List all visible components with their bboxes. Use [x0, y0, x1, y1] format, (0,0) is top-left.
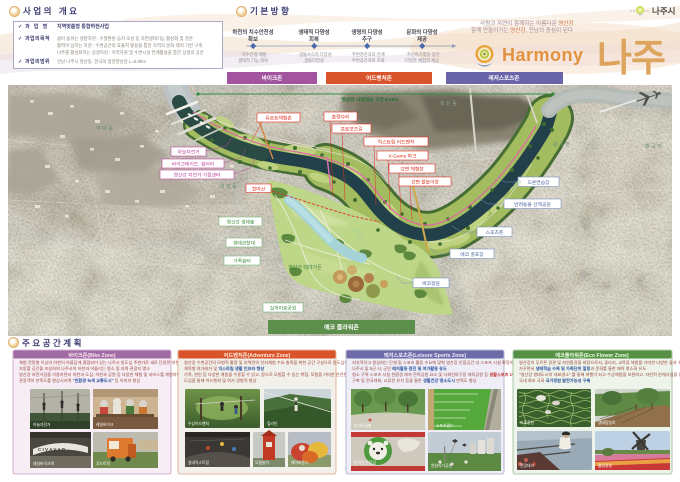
svg-text:· 주변공간과의 조화: · 주변공간과의 조화 — [349, 57, 384, 64]
svg-text:사업의 개요: 사업의 개요 — [23, 6, 79, 16]
svg-text:부덕동: 부덕동 — [96, 125, 114, 132]
svg-text:바이크레이드, 쉼터리: 바이크레이드, 쉼터리 — [172, 161, 214, 168]
svg-text:기본방향: 기본방향 — [250, 6, 291, 16]
svg-text:에코정원: 에코정원 — [422, 280, 440, 287]
svg-text:과 업 명: 과 업 명 — [25, 23, 49, 30]
svg-text:생태탐방로: 생태탐방로 — [598, 420, 616, 425]
svg-text:지역맞춤형 통합하천사업: 지역맞춤형 통합하천사업 — [57, 23, 109, 30]
svg-text:튤립정원: 튤립정원 — [598, 463, 612, 468]
svg-text:✓: ✓ — [18, 36, 22, 42]
svg-text:영산강 사업대상 구간 8.0km: 영산강 사업대상 구간 8.0km — [341, 96, 398, 103]
svg-text:레일바이크역: 레일바이크역 — [33, 461, 54, 466]
svg-text:피크닉공원: 피크닉공원 — [354, 423, 372, 428]
svg-text:칠마산: 칠마산 — [252, 185, 266, 192]
svg-text:문화의 다양성: 문화의 다양성 — [406, 28, 437, 36]
svg-text:에코플라워존(Eco Flower Zone): 에코플라워존(Eco Flower Zone) — [555, 351, 629, 359]
svg-text:유르트체험촌: 유르트체험촌 — [265, 115, 292, 122]
svg-text:지속적이고 왕성하는 단체 및 스포츠 활동 수요에 맞춰: 지속적이고 왕성하는 단체 및 스포츠 활동 수요에 맞춰 영산강 인접공간 내… — [352, 359, 518, 366]
svg-text:나주시: 나주시 — [652, 6, 675, 16]
svg-text:영산강 자전거 거점센터: 영산강 자전거 거점센터 — [174, 172, 221, 179]
svg-text:스포츠존: 스포츠존 — [486, 230, 504, 236]
svg-text:"영산강 생태도시의 대표명소" 를 통해 여행이 되고 수: "영산강 생태도시의 대표명소" 를 통해 여행이 되고 수상체험을 보완하고,… — [519, 371, 680, 378]
svg-text:확보: 확보 — [248, 35, 258, 43]
svg-text:✓: ✓ — [18, 59, 22, 65]
svg-text:모험놀이: 모험놀이 — [255, 460, 269, 465]
svg-text:푸드트럭: 푸드트럭 — [96, 461, 110, 466]
svg-text:어드벤처존(Adventure Zone): 어드벤처존(Adventure Zone) — [224, 351, 291, 359]
svg-text:스포츠필드: 스포츠필드 — [436, 423, 454, 428]
svg-text:반려견 운동장: 반려견 운동장 — [354, 460, 377, 465]
svg-text:나주시 및 5군 시, 군민 레저활동 증진 및 여가활동: 나주시 및 5군 시, 군민 레저활동 증진 및 여가활동 유도 — [352, 365, 447, 372]
svg-text:영산강 생태숲: 영산강 생태숲 — [227, 219, 255, 226]
svg-text:영산강 테마가든: 영산강 테마가든 — [288, 264, 322, 271]
svg-text:바이크존(Bike Zone): 바이크존(Bike Zone) — [68, 351, 116, 359]
svg-text:에코 골프장: 에코 골프장 — [460, 251, 484, 258]
svg-text:미로정원: 미로정원 — [520, 420, 534, 425]
svg-text:· 생물서식지 다양성: · 생물서식지 다양성 — [296, 51, 331, 58]
svg-text:나주를 활성화하는 상생하천 : 지역자원 및 수변시설 연: 나주를 활성화하는 상생하천 : 지역자원 및 수변시설 연계활용을 통한 상생… — [57, 49, 204, 56]
svg-text:회복: 회복 — [309, 35, 319, 43]
svg-text:영산강 수변공간의 모험적 활용 및 지역민의 인지체험 수: 영산강 수변공간의 모험적 활용 및 지역민의 인지체험 수요 충족을 위한 공… — [184, 359, 348, 366]
svg-text:영산강의 푸르른 경관 및 자연환경을 바탕으로서, 꽃다지: 영산강의 푸르른 경관 및 자연환경을 바탕으로서, 꽃다지, 교목류 체험을 … — [519, 359, 680, 366]
svg-text:연날리기공원: 연날리기공원 — [431, 463, 452, 468]
svg-text:조망할 공간을 조성하여 나주시의 하천과 어울리는 명소: 조망할 공간을 조성하여 나주시의 하천과 어울리는 명소 및 지역 관광지 명… — [19, 365, 150, 372]
svg-text:과업의목적: 과업의목적 — [25, 35, 50, 42]
svg-text:구축 및 전국대회, 교류전 유치 등을 통한 생활건강 명: 구축 및 전국대회, 교류전 유치 등을 통한 생활건강 명소도시 만족도 향상 — [352, 377, 477, 384]
svg-text:전망데크: 전망데크 — [520, 463, 534, 468]
svg-text:체험 전망형 이상의 하천이 아름답게 결합되어 있는 나주: 체험 전망형 이상의 하천이 아름답게 결합되어 있는 나주시 원도심 주변가로… — [19, 359, 196, 366]
svg-text:보산동: 보산동 — [440, 100, 458, 107]
svg-text:다양한 체험의 제공: 다양한 체험의 제공 — [405, 57, 439, 64]
svg-text:하천의 치수안전성: 하천의 치수안전성 — [232, 28, 273, 36]
svg-text:왕곡면: 왕곡면 — [553, 141, 571, 148]
svg-text:하늘자전거: 하늘자전거 — [177, 149, 199, 156]
svg-text:체육형 여가레저 및 익스트림 생활 인프라 향상: 체육형 여가레저 및 익스트림 생활 인프라 향상 — [184, 365, 264, 372]
svg-text:실개미로공원: 실개미로공원 — [270, 305, 296, 312]
svg-text:· 치수안정 제방: · 치수안정 제방 — [239, 51, 267, 58]
svg-text:과업의범위: 과업의범위 — [25, 58, 50, 65]
svg-text:레저스포츠존(Leisure Sports Zone): 레저스포츠존(Leisure Sports Zone) — [384, 351, 467, 359]
svg-text:국내 최초 국화 국가정원 발전가능성 구축: 국내 최초 국화 국가정원 발전가능성 구축 — [519, 377, 590, 384]
svg-text:반려동물 산책공원: 반려동물 산책공원 — [514, 201, 551, 208]
svg-text:생명의 다양성: 생명의 다양성 — [351, 28, 382, 36]
svg-text:실내익스트림: 실내익스트림 — [188, 460, 209, 465]
svg-text:가족, 연인 등 다양한 계층을 수용할 수 있고, 몸으로: 가족, 연인 등 다양한 계층을 수용할 수 있고, 몸으로 모험할 수 있는 … — [184, 371, 348, 378]
svg-text:바이크존: 바이크존 — [262, 74, 283, 82]
svg-text:강변 체험장: 강변 체험장 — [400, 166, 424, 173]
svg-text:함께 만들어가는 영산강, 전남의 중심이 된다: 함께 만들어가는 영산강, 전남의 중심이 된다 — [471, 26, 573, 34]
svg-text:생태관찰대: 생태관찰대 — [233, 240, 255, 247]
svg-text:수상어드벤처: 수상어드벤처 — [188, 421, 209, 426]
svg-text:레저스포츠존: 레저스포츠존 — [489, 74, 520, 82]
svg-text:생태적 다양성: 생태적 다양성 — [298, 28, 329, 36]
svg-text:✓: ✓ — [18, 24, 22, 30]
svg-text:청소 구역 스포츠 시설 친환경 레저 전략공원 요소 및: 청소 구역 스포츠 시설 친환경 레저 전략공원 요소 및 사회인야구장 체육공… — [352, 371, 520, 378]
svg-text:황곡리: 황곡리 — [645, 143, 663, 150]
svg-text:이창동: 이창동 — [220, 183, 238, 190]
svg-text:가꾸면서 생태학습 수목 및 가족단위 힐링과 문화를 통한: 가꾸면서 생태학습 수목 및 가족단위 힐링과 문화를 통한 매력 명소화 유도 — [519, 365, 646, 372]
svg-text:영산강 자전거길을 이용하면서 하천과 도심, 하천과 공원: 영산강 자전거길을 이용하면서 하천과 도심, 하천과 공원 등 다양한 체험 … — [19, 371, 197, 378]
svg-text:관광객의 만족도를 향상시키며 "친환경 녹색 교통도시": 관광객의 만족도를 향상시키며 "친환경 녹색 교통도시" 등 이미지 향상 — [19, 377, 140, 384]
svg-text:강변 물놀이장: 강변 물놀이장 — [411, 179, 439, 186]
svg-text:생태적 기능 회복: 생태적 기능 회복 — [238, 57, 268, 64]
svg-text:활력이 넘치는 하천 : 수변공간의 효율적 활용을 통한: 활력이 넘치는 하천 : 수변공간의 효율적 활용을 통한 지역의 문화·레저 … — [57, 42, 202, 49]
svg-text:출렁다리: 출렁다리 — [332, 114, 350, 121]
svg-text:사람과 자연이 함께하는 아름다운 영산강: 사람과 자연이 함께하는 아름다운 영산강 — [480, 19, 574, 27]
svg-text:익스트림 어드벤처: 익스트림 어드벤처 — [378, 139, 415, 146]
svg-text:가족쉼터: 가족쉼터 — [233, 258, 251, 265]
svg-text:어드벤처존: 어드벤처존 — [366, 74, 392, 82]
svg-text:전남 나주시 영산동, 한국의 일현영산강 L=8.0km: 전남 나주시 영산동, 한국의 일현영산강 L=8.0km — [57, 58, 146, 65]
svg-text:하늘자전거: 하늘자전거 — [33, 422, 50, 427]
svg-text:· 주변경관과의 연계: · 주변경관과의 연계 — [349, 51, 384, 58]
svg-text:에어바운스: 에어바운스 — [291, 460, 309, 465]
svg-text:추구: 추구 — [362, 35, 372, 43]
svg-text:도입을 통해 어드벤처 및 여가 경험적 향상: 도입을 통해 어드벤처 및 여가 경험적 향상 — [184, 377, 257, 384]
svg-text:X-Game 파크: X-Game 파크 — [388, 153, 417, 160]
svg-text:· 주민여가활동 증진: · 주민여가활동 증진 — [404, 51, 439, 58]
svg-text:C I V A V A P: C I V A V A P — [38, 447, 65, 452]
svg-text:영산강: 영산강 — [351, 227, 365, 243]
svg-text:삶이 숨쉬는 생명하천 : 수질환원 습지 조성 등 자연생: 삶이 숨쉬는 생명하천 : 수질환원 습지 조성 등 자연생태기능 활성화 및 … — [57, 35, 193, 42]
svg-text:생물다양성: 생물다양성 — [304, 57, 324, 64]
svg-text:레일바이크: 레일바이크 — [96, 422, 114, 427]
svg-text:제공: 제공 — [417, 35, 427, 43]
svg-text:드론연습장: 드론연습장 — [527, 179, 550, 186]
svg-text:짚라인: 짚라인 — [267, 421, 278, 426]
svg-text:프로포즈길: 프로포즈길 — [340, 126, 362, 133]
